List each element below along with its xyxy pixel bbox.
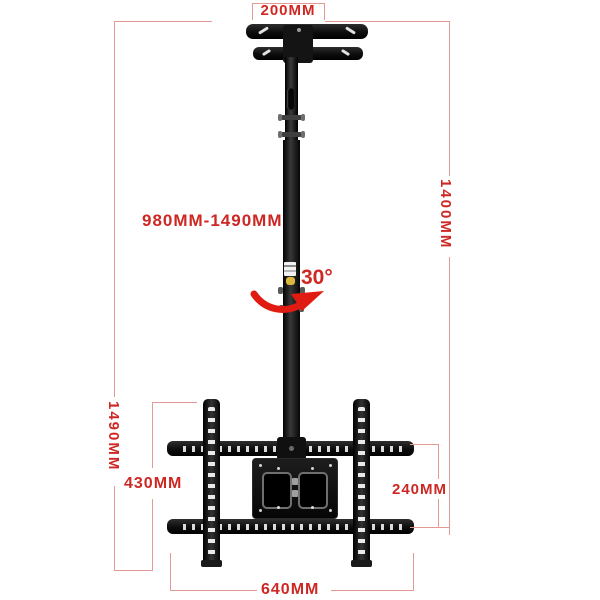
plate-hole-icon	[277, 506, 280, 509]
pole-label-sticker	[284, 262, 296, 276]
plate-hole-icon	[277, 467, 280, 470]
center-mounting-plate	[252, 458, 338, 519]
dim-640mm-right-tick	[413, 553, 414, 591]
vesa-arm-right	[353, 399, 370, 567]
dim-640mm-line-left	[170, 590, 257, 591]
product-dimension-diagram: 200MM 980MM-1490MM 1400MM 30° 1490MM 430…	[0, 0, 600, 600]
arm-hole-column	[358, 407, 365, 555]
pole-clamp-ring	[281, 115, 302, 120]
vesa-arm-left	[203, 399, 220, 567]
plate-cutout-right	[298, 472, 328, 509]
dim-240mm-bottom-tick	[410, 527, 450, 528]
label-overall-drop-right: 1400MM	[437, 179, 454, 249]
plate-hole-icon	[329, 464, 332, 467]
label-swivel-angle: 30°	[301, 266, 333, 290]
arm-hole-column	[208, 407, 215, 555]
dim-240mm-line-lower	[438, 499, 439, 528]
pole-clamp-ring	[281, 132, 302, 137]
plate-hole-icon	[329, 509, 332, 512]
label-pole-height-range: 980MM-1490MM	[142, 211, 283, 231]
plate-bolt-icon	[292, 478, 298, 485]
tilt-joint-bolt-icon	[289, 446, 294, 451]
label-rail-width: 640MM	[261, 581, 319, 599]
dim-1490mm-line-upper	[114, 21, 115, 397]
plate-bolt-icon	[292, 490, 298, 497]
dim-430mm-line-lower	[152, 499, 153, 571]
label-vesa-arm-height: 430MM	[124, 475, 182, 493]
dim-640mm-line-right	[331, 590, 414, 591]
plate-cutout-left	[262, 472, 292, 509]
plate-hole-icon	[311, 467, 314, 470]
plate-hole-icon	[259, 464, 262, 467]
dim-1400mm-line-upper	[449, 21, 450, 176]
label-ceiling-plate-width: 200MM	[250, 2, 326, 19]
dim-1490mm-bottom-tick	[114, 570, 152, 571]
label-overall-drop-left: 1490MM	[105, 401, 122, 471]
plate-hole-icon	[259, 509, 262, 512]
dim-1400mm-top-tick	[325, 21, 450, 22]
plate-bolt-icon	[297, 28, 301, 32]
dim-430mm-top-tick	[152, 402, 197, 403]
plate-hole-icon	[311, 506, 314, 509]
dim-1400mm-line-lower	[449, 257, 450, 535]
pole-cable-slot	[287, 88, 294, 110]
dim-640mm-left-tick	[170, 553, 171, 591]
dim-1490mm-line-lower	[114, 486, 115, 571]
label-rail-spacing: 240MM	[392, 481, 447, 498]
dim-1490mm-top-tick	[114, 21, 212, 22]
dim-430mm-line-upper	[152, 402, 153, 468]
dim-240mm-line-upper	[438, 444, 439, 479]
dim-240mm-top-tick	[410, 444, 438, 445]
